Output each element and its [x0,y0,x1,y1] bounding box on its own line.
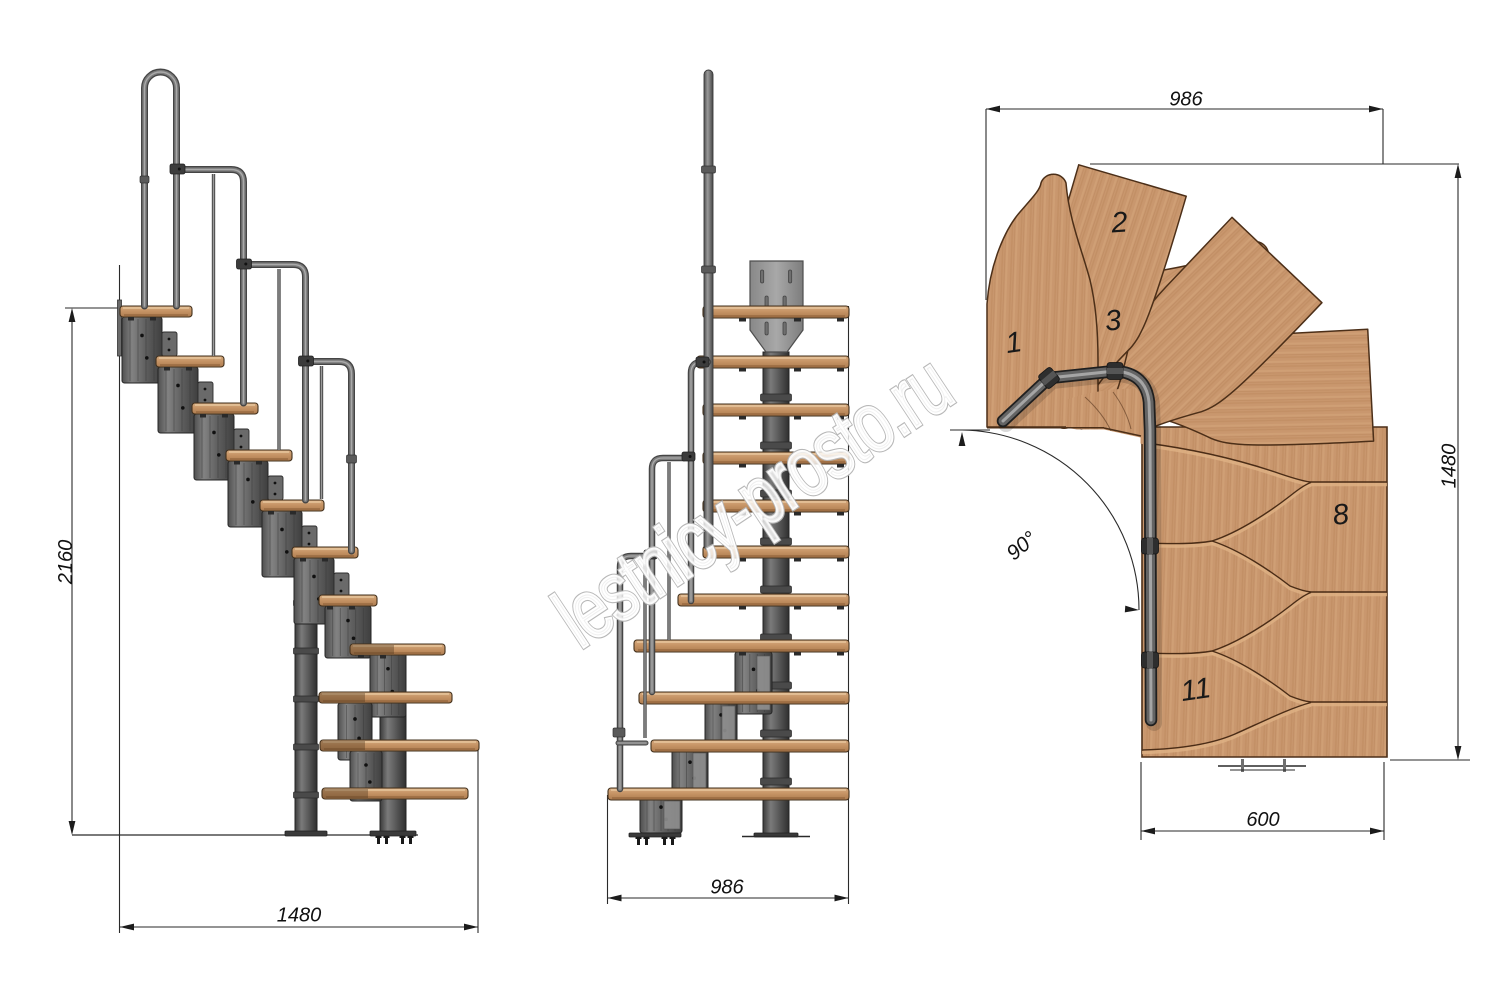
svg-text:986: 986 [710,877,744,899]
svg-text:3: 3 [1103,304,1122,338]
svg-text:11: 11 [1179,672,1213,708]
svg-text:2: 2 [1109,206,1128,239]
svg-text:2160: 2160 [55,540,77,586]
svg-text:1480: 1480 [277,905,322,927]
svg-text:600: 600 [1246,809,1279,831]
svg-text:1480: 1480 [1439,444,1461,489]
svg-text:986: 986 [1169,89,1203,111]
